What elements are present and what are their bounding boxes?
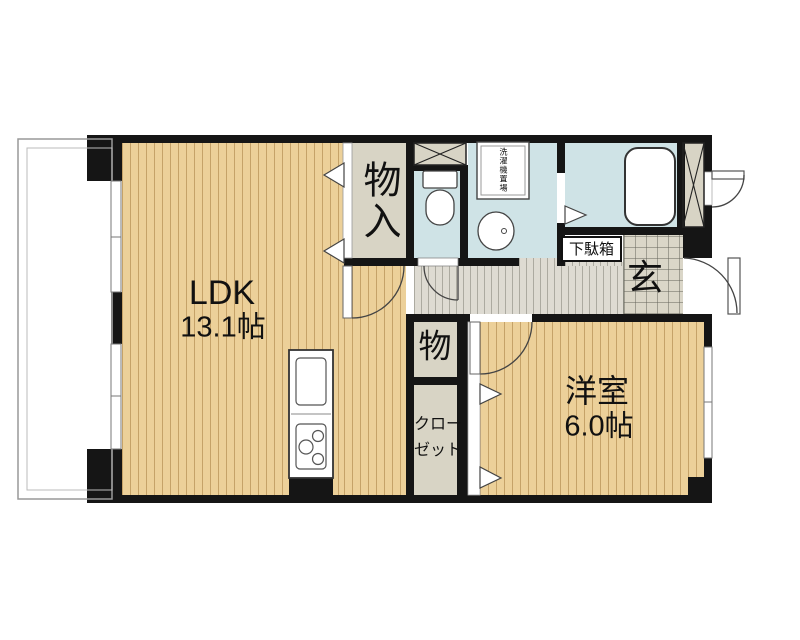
- wall-hall-north-2: [460, 258, 519, 266]
- wall-closet-right: [457, 314, 468, 495]
- wall-storage-right: [406, 143, 414, 258]
- hallway-floor-right: [565, 262, 623, 266]
- wall-mono-divider: [414, 377, 457, 385]
- window-ldk-lower: [111, 344, 121, 449]
- wall-entrance-block: [683, 235, 712, 258]
- wall-bath-right: [677, 143, 685, 227]
- balcony-inner-rail: [27, 148, 112, 490]
- wall-center-low: [406, 314, 414, 497]
- entrance-door-opening: [704, 258, 712, 314]
- wall-under-cabinet: [414, 165, 466, 171]
- laundry-label: 洗濯機置場: [499, 148, 507, 193]
- meter-box-door-leaf: [712, 171, 744, 179]
- room-bathroom-floor: [565, 143, 677, 227]
- wall-corner-br: [688, 477, 712, 503]
- room-closet-floor: [414, 385, 457, 495]
- balcony-outer-rail: [18, 139, 112, 499]
- wall-bottom: [87, 495, 712, 503]
- room-washroom-floor: [468, 143, 557, 258]
- wall-washroom-bath-top: [557, 143, 565, 173]
- wall-top: [87, 135, 712, 143]
- window-ldk-upper: [111, 181, 121, 292]
- western-room-size-label: 6.0帖: [564, 413, 633, 442]
- closet-door-strip: [468, 322, 480, 495]
- wall-kitchen-stub: [289, 477, 333, 497]
- entrance-door-arc: [684, 258, 737, 313]
- room-ldk-floor-ext: [344, 266, 406, 497]
- room-toilet-floor: [414, 171, 460, 258]
- bathroom-door-opening: [557, 173, 565, 223]
- floor-plan: 下駄箱: [0, 0, 800, 640]
- closet-label-line1: クロー: [414, 417, 462, 433]
- overhead-cabinet-area: [414, 143, 466, 165]
- wall-western-north-right: [532, 314, 712, 322]
- storage-closet-label: 物入: [359, 160, 397, 242]
- wall-left-top-block: [87, 135, 122, 181]
- shoe-cabinet-label: 下駄箱: [569, 242, 614, 257]
- wall-western-north-left: [406, 314, 470, 322]
- closet-label-line2: ゼット: [414, 443, 462, 459]
- western-room-door-leaf: [470, 322, 480, 374]
- wall-hall-north-1: [344, 258, 460, 266]
- storage-closet-door-opening: [343, 143, 352, 258]
- wall-toilet-washroom: [460, 165, 468, 266]
- wall-left-mid: [111, 292, 122, 344]
- hallway-floor-gap: [519, 258, 557, 266]
- meter-box-area: [683, 143, 704, 227]
- window-western-room: [704, 347, 712, 458]
- wall-bath-south: [557, 227, 712, 235]
- ldk-label: LDK: [189, 276, 255, 310]
- entrance-door-leaf: [728, 258, 740, 314]
- storage-small-label: 物: [419, 330, 452, 363]
- entrance-label: 玄: [627, 260, 663, 296]
- western-room-label: 洋室: [565, 375, 629, 407]
- ldk-size-label: 13.1帖: [180, 314, 265, 343]
- meter-box-door-arc: [712, 175, 744, 207]
- meter-box-door-opening: [704, 172, 712, 205]
- shoe-cabinet: 下駄箱: [561, 236, 622, 262]
- wall-right-1: [704, 135, 712, 172]
- hallway-floor: [414, 266, 623, 314]
